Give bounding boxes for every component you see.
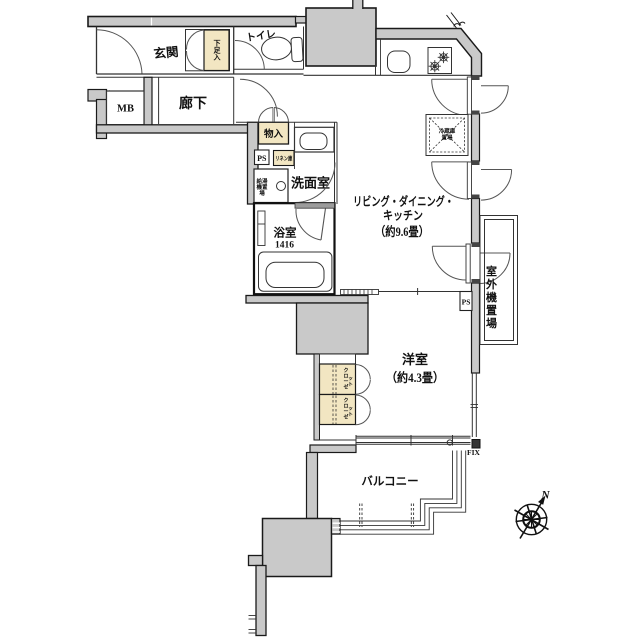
svg-text:場: 場 — [259, 189, 265, 197]
svg-text:リビング・ダイニング・: リビング・ダイニング・ — [353, 194, 454, 209]
svg-text:MB: MB — [117, 104, 134, 115]
svg-text:PS: PS — [462, 298, 471, 307]
svg-text:冷蔵庫: 冷蔵庫 — [439, 127, 456, 135]
svg-text:洗面室: 洗面室 — [291, 176, 330, 191]
svg-text:ト: ト — [348, 412, 353, 418]
svg-text:外: 外 — [485, 277, 497, 291]
svg-text:ク: ク — [343, 397, 348, 404]
svg-text:機: 機 — [486, 290, 497, 304]
svg-text:バルコニー: バルコニー — [361, 475, 418, 488]
svg-text:ッ: ッ — [348, 377, 353, 382]
svg-text:物入: 物入 — [264, 128, 284, 140]
svg-text:（約9.6畳）: （約9.6畳） — [375, 224, 429, 239]
svg-text:室: 室 — [486, 264, 497, 278]
svg-text:ッ: ッ — [348, 407, 353, 412]
svg-text:（約4.3畳）: （約4.3畳） — [386, 370, 444, 385]
svg-text:ク: ク — [343, 367, 348, 374]
svg-text:洋室: 洋室 — [402, 352, 428, 367]
svg-text:場: 場 — [486, 316, 497, 330]
svg-text:置場: 置場 — [441, 134, 453, 142]
svg-text:FIX: FIX — [467, 448, 481, 457]
svg-text:キッチン: キッチン — [383, 209, 423, 223]
svg-text:1416: 1416 — [275, 241, 294, 251]
svg-text:玄関: 玄関 — [153, 44, 179, 61]
svg-text:置: 置 — [486, 304, 497, 317]
svg-text:ト: ト — [348, 382, 353, 388]
svg-text:機置: 機置 — [256, 183, 268, 191]
svg-text:浴室: 浴室 — [274, 226, 297, 240]
svg-text:給湯: 給湯 — [256, 177, 268, 185]
svg-text:リネン庫: リネン庫 — [275, 155, 292, 163]
svg-text:廊下: 廊下 — [179, 95, 207, 112]
svg-text:入: 入 — [213, 54, 221, 62]
svg-text:N: N — [540, 490, 550, 502]
svg-text:PS: PS — [257, 154, 267, 163]
